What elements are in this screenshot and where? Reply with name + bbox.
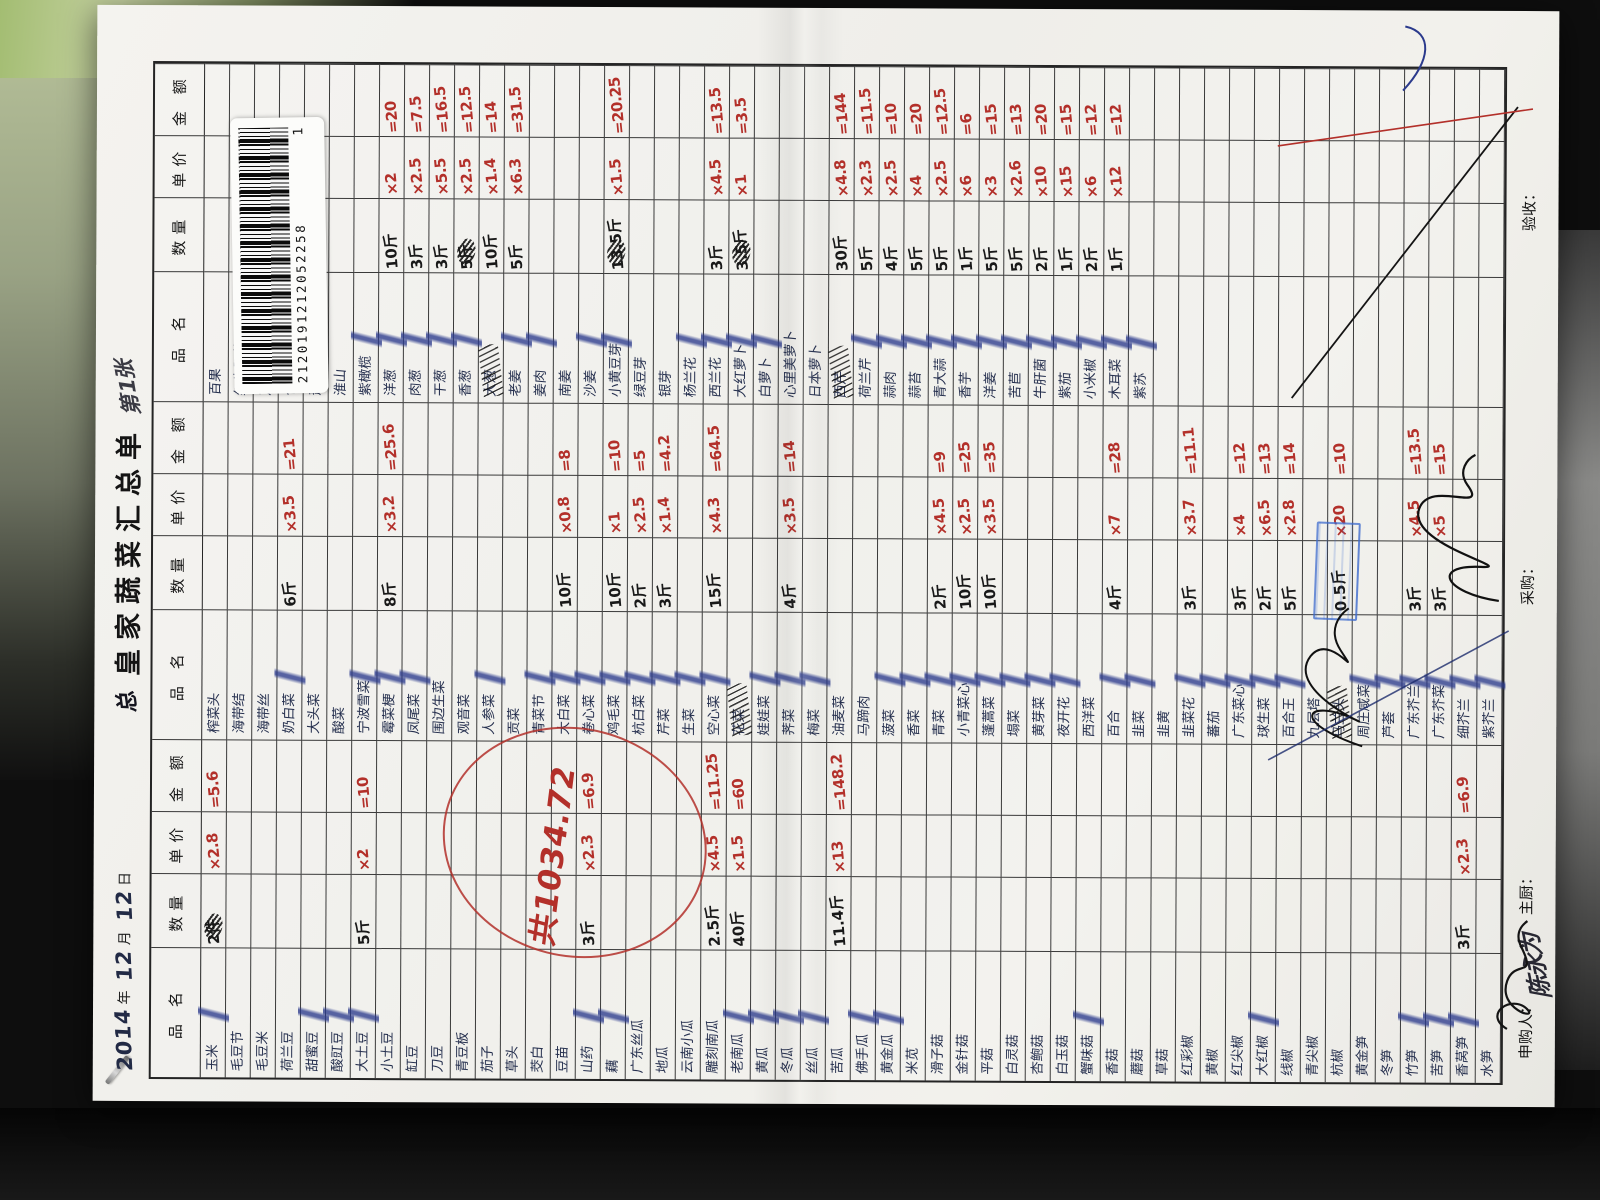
item-name-cell-text: 白玉菇 [1051,1033,1076,1076]
qty-cell [328,536,353,610]
qty-cell [976,877,1001,951]
price-cell-text: ×2.5 [928,159,956,198]
price-cell [1378,478,1403,540]
price-cell [753,476,778,538]
qty-cell-text: 5斤 [903,245,929,272]
item-name-cell: 芹菜 [652,611,678,741]
amount-cell-text: =5 [627,449,653,473]
item-name-cell: 观音菜 [452,610,478,740]
price-cell [1453,479,1478,541]
item-name-cell [1329,276,1355,406]
item-name-cell-text: 马兰头 [1327,697,1352,740]
price-cell [1380,140,1405,202]
item-name-cell: 草菇 [1151,951,1177,1081]
item-name-cell-text: 卷心菜 [577,693,602,736]
item-name-cell: 山药 [576,949,602,1079]
item-name-cell: 杨兰花 [679,273,705,403]
qty-cell-text: 2斤 [627,582,653,609]
price-cell [580,137,605,199]
amount-cell-text: =20 [378,100,405,134]
amount-cell-text: =60 [725,778,752,812]
amount-cell: =12.5 [930,66,955,138]
item-name-cell-text: 红尖椒 [1226,1034,1251,1077]
qty-cell: 10斤 [603,537,628,611]
qty-cell [253,536,278,610]
item-name-cell-text: 周庄咸菜 [1352,683,1377,739]
price-cell: ×10 [1030,139,1055,201]
amount-cell [1478,407,1503,479]
qty-cell: 5斤 [929,200,954,274]
item-name-cell: 韭黄 [1152,613,1178,743]
price-cell [1280,140,1305,202]
price-cell: ×0.8 [553,475,578,537]
price-cell: ×2.6 [1005,139,1030,201]
item-name-cell: 黄椒 [1201,952,1227,1082]
item-name-cell: 广东芥菜 [1427,615,1453,745]
item-name-cell-text: 黄芽菜 [1027,695,1052,738]
item-name-cell-text: 大头菜 [302,692,327,735]
qty-cell: 8斤 [378,536,403,610]
qty-cell [554,199,579,273]
item-name-cell: 青菜节 [527,611,553,741]
qty-cell [1051,877,1076,951]
qty-cell-text: 6斤 [277,580,303,607]
item-name-cell-text: 线椒 [1276,1048,1301,1077]
date-year: 2014 [110,1008,137,1072]
item-name-cell-text: 西洋菜 [1077,696,1102,739]
item-name-cell-text: 杭椒 [1326,1048,1351,1077]
date-month: 12 [111,949,137,982]
qty-cell [1351,878,1376,952]
amount-cell [1052,743,1077,815]
price-cell [1177,816,1202,878]
qty-cell-text: 5斤 [1003,245,1029,272]
qty-cell [1176,878,1201,952]
amount-cell [303,402,328,474]
qty-cell: 3斤 [1228,540,1253,614]
amount-cell [402,740,427,812]
amount-cell [1028,405,1053,477]
item-name-cell: 霉菜梗 [377,610,403,740]
qty-cell [251,873,276,947]
item-name-cell: 花菜 [727,612,753,742]
amount-cell [1205,68,1230,140]
amount-cell: =35 [978,405,1003,477]
qty-cell [1226,878,1251,952]
item-name-cell: 佛手瓜 [851,950,877,1080]
amount-cell [680,65,705,137]
item-name-cell: 宁波雪菜 [352,610,378,740]
item-name-cell: 广东丝瓜 [626,949,652,1079]
item-name-cell-text: 蒜肉 [879,370,904,399]
item-name-cell-text: 大红椒 [1251,1034,1276,1077]
price-cell: ×4.5 [705,137,730,199]
item-name-cell-text: 豆苗 [551,1045,576,1074]
qty-cell [654,199,679,273]
amount-cell: =14 [480,64,505,136]
qty-cell: 5斤 [454,198,479,272]
qty-cell [801,876,826,950]
item-name-cell: 黄金笋 [1351,952,1377,1082]
amount-cell [403,402,428,474]
column-header-amount: 金 额 [153,401,203,473]
item-name-cell: 百合王 [1277,614,1303,744]
price-cell [502,813,527,875]
item-name-cell-text: 蒜苔 [904,370,929,399]
column-header-name: 品 名 [154,271,205,401]
qty-cell [1204,202,1229,276]
item-name-cell: 心里美萝卜 [779,274,805,404]
price-cell: ×1.4 [653,475,678,537]
item-name-cell-text: 黄金瓜 [876,1033,901,1076]
amount-cell [927,742,952,814]
item-name-cell: 红彩椒 [1176,952,1202,1082]
amount-cell-text: =8 [552,449,578,473]
price-cell [1405,141,1430,203]
price-cell-text: ×4.5 [926,497,954,536]
item-name-cell-text: 雕刻南瓜 [701,1018,726,1074]
price-cell-text: ×2.6 [1003,160,1031,199]
item-name-cell-text: 百合 [1102,709,1127,738]
item-name-cell-text: 沙姜 [579,369,604,398]
price-cell: ×2.5 [953,477,978,539]
item-name-cell-text: 水笋 [1476,1049,1501,1078]
amount-cell-text: =9 [927,450,953,474]
amount-cell: =15 [1055,67,1080,139]
price-cell [555,137,580,199]
qty-cell [804,200,829,274]
price-cell [402,812,427,874]
qty-cell: 5斤 [854,200,879,274]
amount-cell [902,742,927,814]
amount-cell [853,404,878,476]
item-name-cell: 韭菜 [1127,613,1153,743]
qty-cell [476,874,501,948]
amount-cell [1002,743,1027,815]
item-name-cell-text: 韭菜 [1127,709,1152,738]
qty-cell-text: 5斤 [1277,585,1303,612]
item-name-cell: 青尖椒 [1301,952,1327,1082]
amount-cell: =28 [1103,405,1128,477]
price-cell [527,813,552,875]
item-name-cell-text: 甜蜜豆 [301,1030,326,1073]
item-name-cell: 蕃茄 [1202,614,1228,744]
receiver-label: 验收： [1518,186,1539,231]
amount-cell-text: =6.9 [1450,776,1478,815]
item-name-cell-text: 酸豇豆 [326,1030,351,1073]
item-name-cell-text: 佛手瓜 [851,1033,876,1076]
item-name-cell-text: 西兰花 [704,356,729,399]
amount-cell [1078,405,1103,477]
price-cell [528,475,553,537]
price-cell-text: ×2.3 [575,834,603,873]
item-name-cell-text: 花菜 [727,707,752,736]
price-cell [1155,139,1180,201]
item-name-cell: 黄瓜 [751,950,777,1080]
item-name-cell-text: 小土豆 [376,1030,401,1073]
item-name-cell: 酸豇豆 [326,948,352,1078]
item-name-cell-text: 茭白 [526,1045,551,1074]
item-name-cell: 马兰头 [1327,614,1353,744]
amount-cell: =6.9 [577,741,602,813]
qty-cell [1479,203,1504,277]
qty-cell: 3斤 [1178,540,1203,614]
qty-cell [1478,541,1503,615]
item-name-cell-text: 海带丝 [252,692,277,735]
price-cell-text: ×5 [1427,515,1453,539]
amount-cell [1003,405,1028,477]
item-name-cell: 生菜 [677,611,703,741]
qty-cell [601,875,626,949]
amount-cell [803,404,828,476]
item-name-cell-text: 蟹味菇 [1076,1034,1101,1077]
qty-cell [1126,877,1151,951]
amount-cell: =6.9 [1452,745,1477,817]
item-name-cell-text: 韭黄 [1152,709,1177,738]
qty-cell [1128,539,1153,613]
qty-cell-text: 3斤 [403,243,429,270]
amount-cell [578,403,603,475]
item-name-cell: 杭椒 [1326,952,1352,1082]
price-cell [1305,140,1330,202]
amount-cell [1303,406,1328,478]
amount-cell-text: =28 [1102,441,1129,475]
item-name-cell-text: 韭菜花 [1177,696,1202,739]
price-cell [453,474,478,536]
amount-cell [227,739,252,811]
price-cell [227,811,252,873]
amount-cell: =144 [830,66,855,138]
price-cell: ×4 [1228,478,1253,540]
price-cell [678,475,703,537]
item-name-cell: 鸡毛菜 [602,611,628,741]
item-name-cell: 蒜肉 [879,274,905,404]
item-name-cell-text: 凤尾菜 [402,693,427,736]
qty-cell [1129,201,1154,275]
price-cell [1355,140,1380,202]
item-name-cell: 日本萝卜 [804,274,830,404]
price-cell [1377,816,1402,878]
amount-cell: =4.2 [653,403,678,475]
amount-cell: =12.5 [455,64,480,136]
amount-cell [1077,743,1102,815]
item-name-cell-text: 广东丝瓜 [626,1018,651,1074]
item-name-cell-text: 贡菜 [502,706,527,735]
amount-cell [205,63,230,135]
qty-cell-text: 10斤 [378,232,405,270]
amount-cell-text: =31.5 [503,85,532,134]
amount-cell: =9 [928,404,953,476]
qty-cell: 40斤 [726,876,751,950]
item-name-cell: 地瓜 [651,949,677,1079]
item-name-cell-text: 冬瓜 [776,1046,801,1075]
price-cell [1128,477,1153,539]
price-cell-text: ×6.5 [1251,499,1279,538]
qty-cell: 2斤 [628,537,653,611]
price-cell-text: ×2.5 [403,157,431,196]
column-header-price: 单价 [153,473,203,535]
price-cell: ×4.5 [1403,479,1428,541]
item-name-cell-text: 紫芥兰 [1477,697,1502,740]
price-cell [652,813,677,875]
price-cell [1078,477,1103,539]
item-name-cell-text: 细芥兰 [1452,697,1477,740]
qty-cell [1326,878,1351,952]
price-cell [1230,140,1255,202]
amount-cell [877,742,902,814]
qty-cell [1153,539,1178,613]
item-name-cell-text: 小黄豆芽 [604,342,629,398]
qty-cell [326,874,351,948]
amount-cell [580,65,605,137]
qty-cell: 5斤 [1278,540,1303,614]
photo-of-handwritten-order-form: { "colors":{"ink_blue":"#26304f","ink_re… [0,0,1600,1200]
qty-cell-text: 2件 [200,918,226,945]
qty-cell: 30斤 [829,200,854,274]
amount-cell-text: =12 [1078,103,1105,137]
item-name-cell-text: 观音菜 [452,693,477,736]
item-name-cell: 小青菜心 [952,613,978,743]
item-name-cell: 水笋 [1476,953,1502,1083]
item-name-cell-text: 奶白菜 [277,692,302,735]
item-name-cell: 白萝卜 [754,274,780,404]
amount-cell: =60 [727,742,752,814]
amount-cell [1430,69,1455,141]
qty-cell: 2斤 [1253,540,1278,614]
qty-cell: 3斤 [653,537,678,611]
item-name-cell: 蓬蒿菜 [977,613,1003,743]
item-name-cell: 油麦菜 [827,612,853,742]
price-cell [1327,816,1352,878]
price-cell-text: ×4.5 [700,834,728,873]
qty-cell [1201,878,1226,952]
amount-cell-text: =12.5 [453,85,482,134]
price-cell [428,474,453,536]
price-cell-text: ×4.5 [703,158,731,197]
qty-cell [751,876,776,950]
item-name-cell-text: 丝瓜 [801,1046,826,1075]
qty-cell-text: 3斤 [1227,584,1253,611]
price-cell [1127,815,1152,877]
price-cell [1027,815,1052,877]
price-cell [330,136,355,198]
qty-cell [426,874,451,948]
qty-cell [753,538,778,612]
qty-cell [851,876,876,950]
qty-cell: 2斤 [1079,201,1104,275]
price-cell: ×6.3 [505,137,530,199]
qty-cell-text: 3斤 [703,244,729,271]
item-name-cell-text: 百合王 [1277,696,1302,739]
amount-cell-text: =15 [1053,103,1080,137]
amount-cell [302,740,327,812]
qty-cell [629,199,654,273]
amount-cell [355,64,380,136]
item-name-cell: 木耳菜 [1104,275,1130,405]
item-name-cell-text: 芦荟 [1377,710,1402,739]
price-cell: ×3 [980,139,1005,201]
item-name-cell [1229,276,1255,406]
item-name-cell: 大红萝卜 [729,274,755,404]
amount-cell-text: =20 [903,102,930,136]
order-table: 品 名数量单价金 额品 名数量单价金 额品 名数量单价金 额玉米2件×2.8=5… [149,61,1507,1085]
item-name-cell [1179,276,1205,406]
chef-label: 主厨： [1515,870,1536,915]
item-name-cell: 毛豆米 [251,947,277,1077]
item-name-cell-text: 鸡毛菜 [602,693,627,736]
amount-cell-text: =12 [1103,103,1130,137]
price-cell [952,815,977,877]
item-name-cell: 香菇 [1101,951,1127,1081]
item-name-cell-text: 肉葱 [404,368,429,397]
item-name-cell-text: 香莴笋 [1451,1035,1476,1078]
qty-cell: 15斤 [703,537,728,611]
price-cell: ×1 [730,138,755,200]
qty-cell [1354,202,1379,276]
price-cell [680,137,705,199]
item-name-cell: 缸豆 [401,948,427,1078]
item-name-cell: 榨菜头 [202,609,228,739]
price-cell: ×2.5 [880,138,905,200]
item-name-cell-text: 藕 [601,1058,626,1074]
price-cell: ×2.8 [1278,478,1303,540]
amount-cell [752,742,777,814]
amount-cell [478,402,503,474]
item-name-cell-text: 大红萝卜 [729,342,754,398]
amount-cell: =10 [1328,406,1353,478]
price-cell: ×20 [1328,478,1353,540]
item-name-cell-text: 空心菜 [702,694,727,737]
item-name-cell-text: 冬笋 [1376,1048,1401,1077]
qty-cell [1404,203,1429,277]
price-cell [252,811,277,873]
item-name-cell-text: 苦笋 [1426,1049,1451,1078]
qty-cell: 10斤 [553,537,578,611]
price-cell: ×2.5 [930,138,955,200]
amount-cell [1378,406,1403,478]
price-cell-text: ×3 [979,175,1005,199]
item-name-cell-text: 心里美萝卜 [779,329,804,399]
item-name-cell: 海带丝 [252,609,278,739]
item-name-cell-text: 干葱 [429,368,454,397]
column-header-price: 单价 [152,811,202,873]
price-cell-text: ×10 [1028,165,1055,199]
background-table-left [0,0,102,780]
item-name-cell-text: 芹菜 [652,707,677,736]
amount-cell [552,741,577,813]
amount-cell: =16.5 [430,64,455,136]
item-name-cell: 围边生菜 [427,610,453,740]
price-cell [1455,141,1480,203]
qty-cell [403,536,428,610]
qty-cell-text: 2斤 [1252,585,1278,612]
price-cell [203,473,228,535]
amount-cell [977,743,1002,815]
qty-cell-text: 2.5斤 [700,904,727,947]
price-cell [1002,815,1027,877]
price-cell [878,476,903,538]
item-name-cell-text: 黄瓜 [751,1046,776,1075]
item-name-cell: 人参菜 [477,610,503,740]
qty-cell [803,538,828,612]
price-cell-text: ×1.5 [603,158,631,197]
amount-cell-text: =25 [952,441,979,475]
qty-cell: 5斤 [1004,201,1029,275]
price-cell [802,814,827,876]
price-cell-text: ×3.5 [276,494,304,533]
price-cell: ×3.5 [778,476,803,538]
item-name-cell: 紫芥兰 [1477,615,1503,745]
